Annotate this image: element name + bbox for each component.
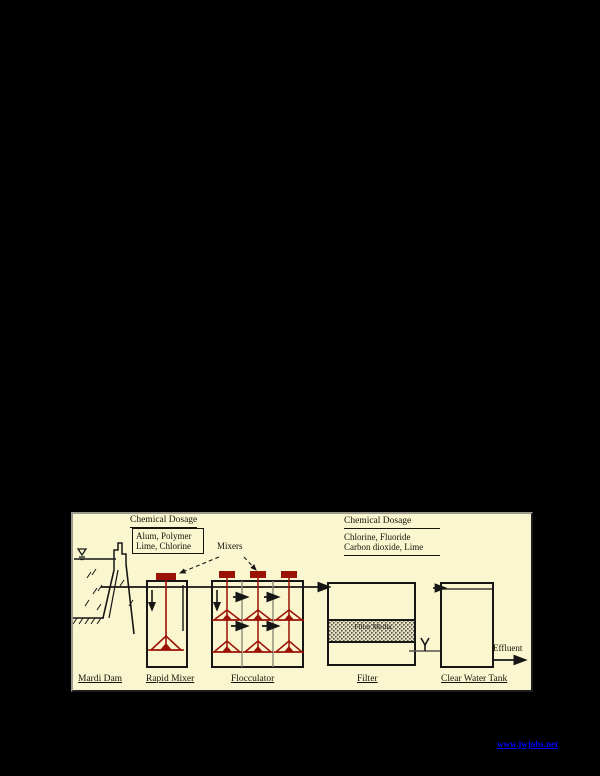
dosage-chemicals-line: Carbon dioxide, Lime xyxy=(344,542,440,552)
dam-drawing xyxy=(73,543,134,634)
mixers-label: Mixers xyxy=(217,541,243,551)
document-page: { "page": {"background_color": "#000000"… xyxy=(0,0,600,776)
mixers-pointer-arrows xyxy=(180,557,256,573)
clear-water-tank xyxy=(433,583,493,667)
water-treatment-plant-diagram: Chemical Dosage Alum, Polymer Lime, Chlo… xyxy=(71,512,533,692)
rapid-mixer-impeller xyxy=(148,573,184,650)
ground-hatching xyxy=(73,618,101,624)
stage-label-flocculator: Flocculator xyxy=(231,674,274,685)
left-chemical-dosage-heading: Chemical Dosage xyxy=(130,515,197,528)
flow-arrows xyxy=(231,597,278,626)
stage-label-clear-water-tank: Clear Water Tank xyxy=(441,674,507,685)
right-chemical-dosage-heading: Chemical Dosage xyxy=(344,516,440,529)
water-level-icon xyxy=(78,549,86,560)
flocculator-impellers xyxy=(212,571,304,652)
dosage-chemicals-line: Chlorine, Fluoride xyxy=(344,532,440,542)
stage-label-filter: Filter xyxy=(357,674,378,685)
right-chemical-dosage-block: Chemical Dosage Chlorine, Fluoride Carbo… xyxy=(344,516,440,556)
filter-media-label: Filter Media xyxy=(331,623,415,632)
watermark-link[interactable]: www.jwjobs.net xyxy=(497,739,558,749)
left-chemical-dosage-box: Alum, Polymer Lime, Chlorine xyxy=(132,528,204,554)
dosage-chemicals-line: Lime, Chlorine xyxy=(136,541,200,551)
valve-icon xyxy=(421,638,429,651)
stage-label-mardi-dam: Mardi Dam xyxy=(78,674,122,685)
flocculator-tank xyxy=(212,571,304,667)
stage-label-rapid-mixer: Rapid Mixer xyxy=(146,674,194,685)
dosage-chemicals-line: Alum, Polymer xyxy=(136,531,200,541)
effluent-label: Effluent xyxy=(493,643,522,653)
